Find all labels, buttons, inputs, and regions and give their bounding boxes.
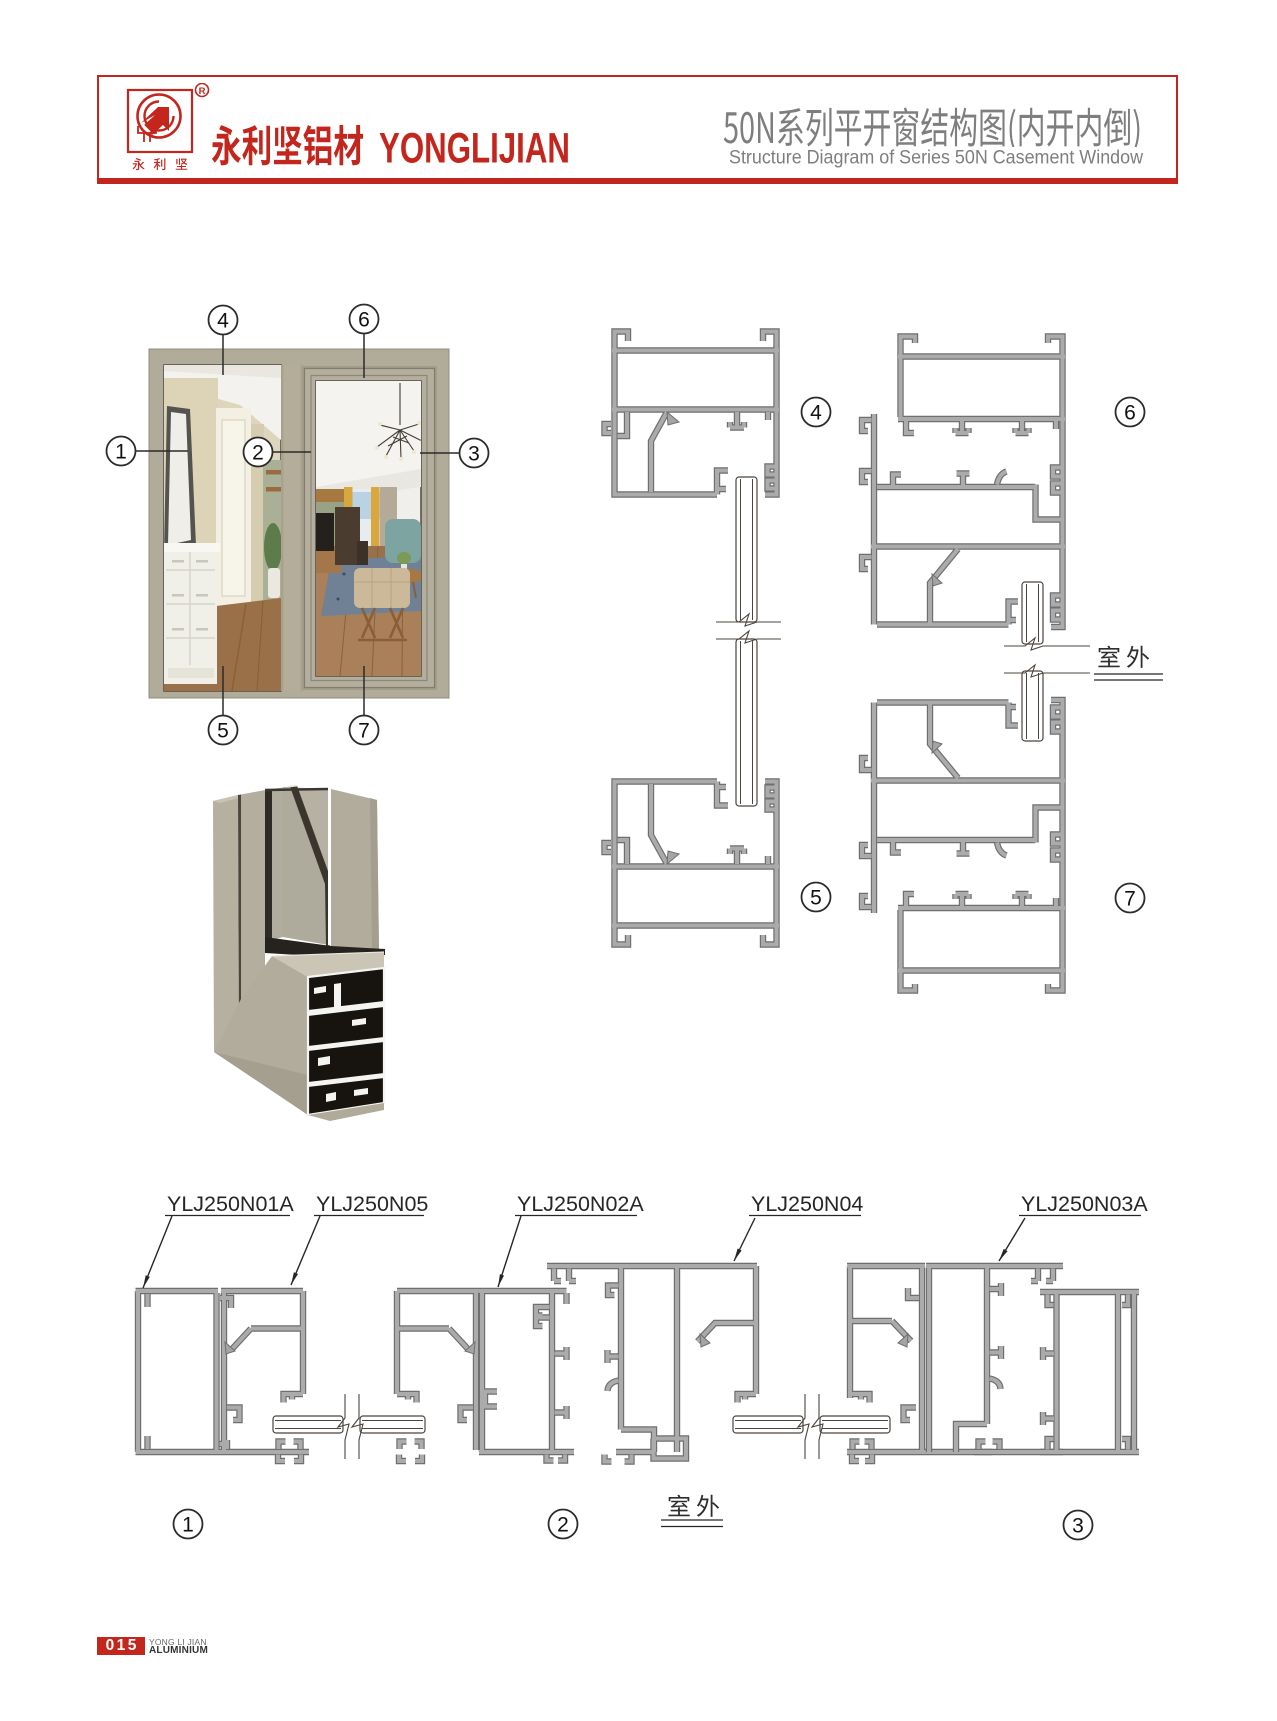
svg-text:1: 1 <box>115 441 127 464</box>
svg-text:4: 4 <box>217 310 229 333</box>
svg-text:6: 6 <box>1124 402 1136 425</box>
svg-text:YLJ250N05: YLJ250N05 <box>316 1192 428 1216</box>
svg-text:YONGLIJIAN: YONGLIJIAN <box>379 125 570 171</box>
svg-text:Structure Diagram of Series 50: Structure Diagram of Series 50N Casement… <box>729 147 1144 169</box>
svg-text:4: 4 <box>810 402 822 425</box>
svg-text:YLJ250N04: YLJ250N04 <box>751 1192 863 1216</box>
svg-text:YLJ250N02A: YLJ250N02A <box>517 1192 644 1216</box>
svg-text:6: 6 <box>358 309 370 332</box>
svg-text:3: 3 <box>1072 1515 1084 1538</box>
svg-text:7: 7 <box>358 720 370 743</box>
svg-text:5: 5 <box>810 887 822 910</box>
svg-text:2: 2 <box>252 442 264 465</box>
svg-text:R: R <box>199 86 206 97</box>
svg-text:7: 7 <box>1124 888 1136 911</box>
svg-text:YLJ250N03A: YLJ250N03A <box>1021 1192 1148 1216</box>
svg-text:YLJ250N01A: YLJ250N01A <box>167 1192 294 1216</box>
svg-text:5: 5 <box>217 720 229 743</box>
svg-text:3: 3 <box>468 443 480 466</box>
svg-text:1: 1 <box>182 1514 194 1537</box>
svg-text:2: 2 <box>557 1514 569 1537</box>
